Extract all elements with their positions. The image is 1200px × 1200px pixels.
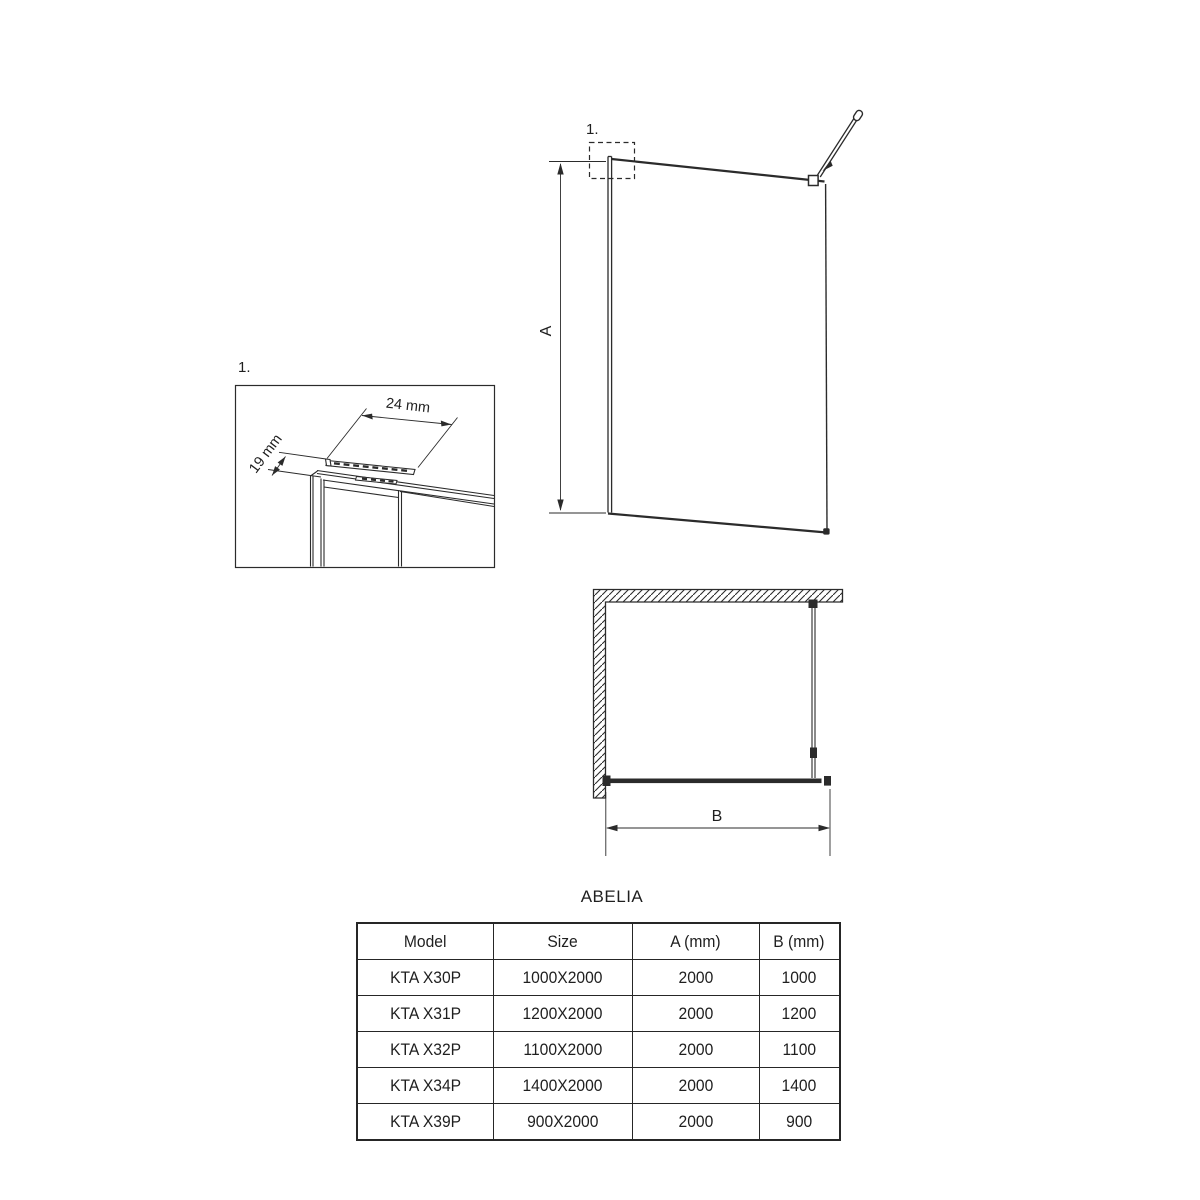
support-arm (818, 109, 864, 177)
detail-view-marker: 1. (238, 359, 251, 376)
cell-a: 2000 (632, 996, 759, 1032)
table-title: ABELIA (512, 887, 712, 907)
table-row: KTA X39P 900X2000 2000 900 (357, 1104, 840, 1141)
cell-a: 2000 (632, 1068, 759, 1104)
cell-size: 1000X2000 (493, 960, 632, 996)
cell-model: KTA X34P (357, 1068, 493, 1104)
cell-size: 900X2000 (493, 1104, 632, 1141)
detail-frame (236, 386, 495, 568)
table-row: KTA X31P 1200X2000 2000 1200 (357, 996, 840, 1032)
front-view-drawing (590, 109, 864, 534)
size-table: Model Size A (mm) B (mm) KTA X30P 1000X2… (356, 922, 841, 1141)
glass-end-cap (824, 776, 831, 786)
cell-size: 1200X2000 (493, 996, 632, 1032)
cell-b: 1100 (759, 1032, 840, 1068)
cell-model: KTA X32P (357, 1032, 493, 1068)
cell-a: 2000 (632, 1032, 759, 1068)
col-header-b-mm: B (mm) (759, 923, 840, 960)
wall-profile-clamp (603, 776, 611, 787)
glass-panel-plan (606, 779, 822, 784)
table-header-row: Model Size A (mm) B (mm) (357, 923, 840, 960)
table-row: KTA X30P 1000X2000 2000 1000 (357, 960, 840, 996)
cell-b: 1200 (759, 996, 840, 1032)
cell-b: 1400 (759, 1068, 840, 1104)
table-row: KTA X32P 1100X2000 2000 1100 (357, 1032, 840, 1068)
col-header-model: Model (357, 923, 493, 960)
cell-b: 900 (759, 1104, 840, 1141)
table-row: KTA X34P 1400X2000 2000 1400 (357, 1068, 840, 1104)
col-header-size: Size (493, 923, 632, 960)
dimension-A-label: A (538, 320, 560, 342)
cell-b: 1000 (759, 960, 840, 996)
col-header-a-mm: A (mm) (632, 923, 759, 960)
plan-view-drawing (594, 590, 843, 799)
bar-clamp (810, 748, 817, 759)
spec-sheet: 1. A 1. 24 mm 19 mm B ABELIA Model Size … (0, 0, 1200, 1200)
detail-view-drawing (236, 386, 495, 568)
cell-a: 2000 (632, 1104, 759, 1141)
cell-model: KTA X39P (357, 1104, 493, 1141)
wall-hatched (594, 590, 843, 799)
dimension-B-label: B (703, 808, 731, 826)
cell-a: 2000 (632, 960, 759, 996)
cell-model: KTA X30P (357, 960, 493, 996)
arm-end-cap (852, 109, 863, 122)
cell-size: 1100X2000 (493, 1032, 632, 1068)
floor-support-dot (823, 528, 829, 534)
bar-wall-connector (809, 600, 818, 609)
cell-model: KTA X31P (357, 996, 493, 1032)
cell-size: 1400X2000 (493, 1068, 632, 1104)
front-view-detail-marker: 1. (586, 121, 599, 138)
arm-bracket (809, 176, 819, 186)
